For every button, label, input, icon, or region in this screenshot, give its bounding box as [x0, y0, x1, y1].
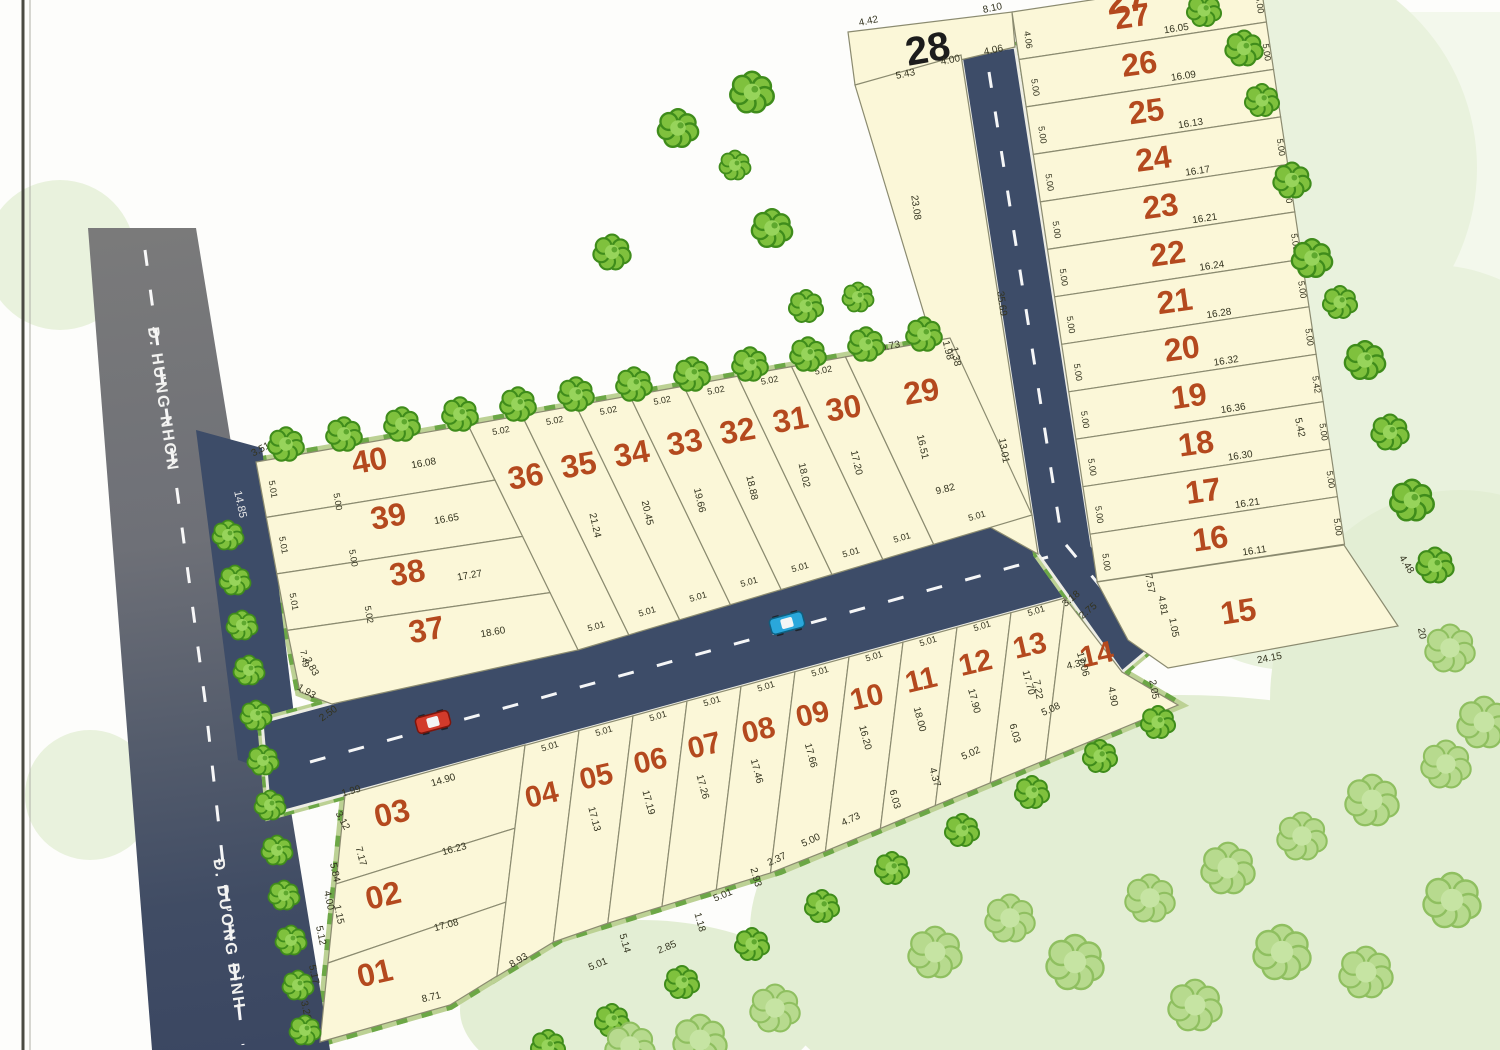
lot-25-number: 25	[1126, 91, 1166, 132]
bush-icon	[1390, 480, 1433, 521]
bush-icon	[241, 701, 272, 730]
bush-icon	[732, 347, 768, 380]
bush-icon	[500, 387, 536, 420]
bush-icon	[220, 566, 251, 595]
bush-icon	[558, 377, 594, 410]
lot-17-number: 17	[1183, 470, 1223, 511]
bush-icon	[1371, 415, 1408, 450]
lot-19-number: 19	[1169, 376, 1209, 417]
lot-20-number: 20	[1162, 328, 1202, 369]
lot-35-number: 35	[558, 444, 599, 486]
bush-icon	[875, 852, 909, 884]
lot-37-number: 37	[406, 609, 447, 651]
lot-32-number: 32	[717, 410, 758, 452]
bush-icon	[326, 417, 362, 450]
bush-icon	[213, 521, 244, 550]
bush-icon	[227, 611, 258, 640]
lot-18-number: 18	[1176, 423, 1216, 464]
bush-icon	[658, 109, 698, 147]
bush-icon	[789, 290, 823, 322]
lot-23-number: 23	[1140, 186, 1180, 227]
bush-icon	[616, 367, 652, 400]
bush-icon	[1225, 31, 1262, 66]
bush-icon	[1141, 706, 1175, 738]
bush-icon	[268, 427, 304, 460]
plat-map: 282716.054.065.002616.095.005.002516.135…	[0, 0, 1500, 1050]
bush-icon	[1292, 239, 1332, 277]
bush-icon	[790, 337, 826, 370]
plat-map-svg: 282716.054.065.002616.095.005.002516.135…	[0, 0, 1500, 1050]
bush-icon	[248, 746, 279, 775]
bush-icon	[1323, 286, 1357, 318]
bush-icon	[665, 966, 699, 998]
lot-24-number: 24	[1133, 138, 1173, 179]
lot-33-number: 33	[664, 421, 705, 463]
lot-30-number: 30	[823, 387, 864, 429]
bush-icon	[593, 235, 630, 270]
lot-36-number: 36	[505, 455, 546, 497]
lot-31-number: 31	[770, 398, 811, 440]
lot-15-number: 15	[1218, 591, 1259, 632]
bush-icon	[730, 72, 773, 113]
bush-icon	[752, 209, 792, 247]
bush-icon	[255, 791, 286, 820]
bush-icon	[1015, 776, 1049, 808]
lot-22-number: 22	[1147, 233, 1187, 274]
bush-icon	[848, 327, 884, 360]
bush-icon	[290, 1016, 321, 1045]
bush-icon	[1416, 548, 1453, 583]
bush-icon	[843, 283, 874, 312]
lot-26-number: 26	[1119, 43, 1159, 84]
lot-34-number: 34	[611, 432, 653, 474]
bush-icon	[720, 151, 751, 180]
bush-icon	[1273, 163, 1310, 198]
bush-icon	[1083, 740, 1117, 772]
bush-icon	[276, 926, 307, 955]
bush-icon	[945, 814, 979, 846]
lot-29-number: 29	[901, 370, 942, 412]
lot-21-number: 21	[1155, 281, 1195, 322]
bush-icon	[805, 890, 839, 922]
lot-38-number: 38	[387, 552, 428, 594]
bush-icon	[384, 407, 420, 440]
bush-icon	[269, 881, 300, 910]
bush-icon	[674, 357, 710, 390]
bush-icon	[234, 656, 265, 685]
bush-icon	[283, 971, 314, 1000]
lot-16-number: 16	[1190, 518, 1230, 559]
bush-icon	[1245, 84, 1279, 116]
bush-icon	[906, 317, 942, 350]
bush-icon	[262, 836, 293, 865]
bush-icon	[442, 397, 478, 430]
lot-39-number: 39	[368, 495, 409, 537]
bush-icon	[735, 928, 769, 960]
bush-icon	[1345, 341, 1385, 379]
